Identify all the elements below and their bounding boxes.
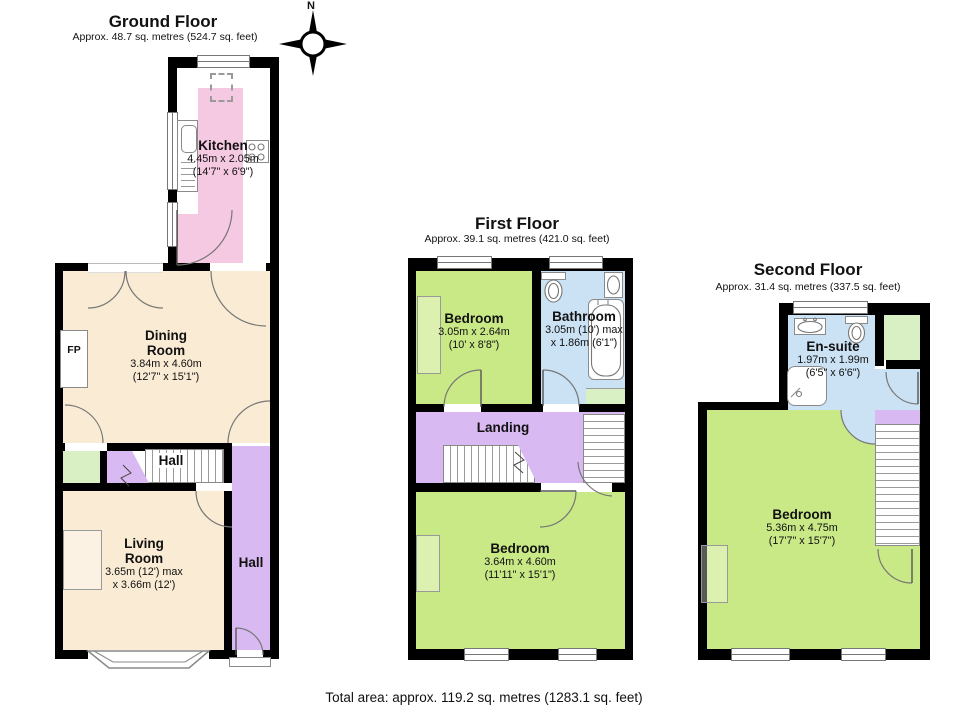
room-label: Bathroom 3.05m (10') max x 1.86m (6'1")	[545, 309, 623, 350]
floor-subtitle: Approx. 31.4 sq. metres (337.5 sq. feet)	[715, 281, 900, 293]
front-door-step	[229, 657, 271, 667]
appliance-outline	[210, 73, 233, 102]
room-name: Dining	[130, 328, 201, 343]
room-dims: 3.05m (10') max	[545, 324, 623, 337]
room-dims: x 3.66m (12')	[105, 579, 183, 592]
fireplace-label: FP	[67, 344, 80, 356]
room-dims: 3.65m (12') max	[105, 566, 183, 579]
floor-title: First Floor	[475, 214, 559, 234]
hall-label: Hall	[239, 555, 264, 570]
stair-winder	[107, 451, 149, 483]
room-dims: 3.64m x 4.60m	[484, 556, 555, 569]
door-opening	[65, 443, 107, 451]
room-dims: (17'7" x 15'7")	[766, 535, 837, 548]
wall	[875, 313, 884, 366]
window	[841, 648, 886, 661]
room-label: En-suite 1.97m x 1.99m (6'5" x 6'6")	[797, 339, 868, 380]
wall	[920, 303, 930, 660]
floor-subtitle: Approx. 39.1 sq. metres (421.0 sq. feet)	[424, 233, 609, 245]
window	[793, 301, 868, 314]
wall	[270, 57, 279, 263]
window	[549, 256, 603, 269]
room-name: En-suite	[797, 339, 868, 354]
door-opening	[541, 483, 578, 492]
room-label: Living Room 3.65m (12') max x 3.66m (12'…	[105, 536, 183, 592]
window	[731, 648, 790, 661]
french-door-opening	[88, 263, 163, 273]
cupboard-floor	[586, 388, 625, 404]
room-name: Room	[130, 343, 201, 358]
door-opening	[578, 483, 612, 492]
window	[558, 648, 597, 661]
wall	[886, 360, 925, 369]
kitchen-galley	[177, 214, 243, 263]
landing-label: Landing	[477, 420, 530, 435]
door-opening	[196, 483, 232, 491]
window	[464, 648, 509, 661]
room-dims: 1.97m x 1.99m	[797, 354, 868, 367]
compass-circle	[301, 32, 325, 56]
alcove-outline	[63, 530, 102, 590]
staircase	[443, 445, 535, 483]
wall	[408, 649, 633, 660]
floor-title: Second Floor	[754, 260, 863, 280]
room-dims: (11'11" x 15'1")	[484, 569, 555, 582]
alcove-outline	[416, 535, 440, 592]
floor-subtitle: Approx. 48.7 sq. metres (524.7 sq. feet)	[72, 31, 257, 43]
wall	[100, 451, 107, 483]
room-name: Bathroom	[545, 309, 623, 324]
door-opening	[210, 263, 266, 271]
room-dims: 4.45m x 2.05m	[187, 153, 258, 166]
compass-north-label: N	[307, 0, 315, 12]
room-dims: (14'7" x 6'9")	[187, 166, 258, 179]
room-name: Bedroom	[484, 541, 555, 556]
wall	[698, 402, 707, 660]
wall	[625, 258, 633, 660]
floor-title: Ground Floor	[109, 12, 218, 32]
wall	[698, 402, 788, 410]
basin-icon	[604, 272, 623, 298]
hall-label: Hall	[156, 453, 187, 468]
room-label: Bedroom 5.36m x 4.75m (17'7" x 15'7")	[766, 507, 837, 548]
wall	[408, 258, 416, 660]
window	[197, 55, 250, 68]
hall-corridor-floor	[232, 446, 270, 650]
room-label: Dining Room 3.84m x 4.60m (12'7" x 15'1"…	[130, 328, 201, 384]
toilet-cistern-icon	[541, 272, 566, 280]
ensuite-entry-floor	[875, 369, 920, 410]
toilet-cistern-icon	[845, 316, 868, 324]
basin-icon	[794, 318, 826, 335]
room-label: Bedroom 3.05m x 2.64m (10' x 8'8")	[438, 311, 509, 352]
room-name: Room	[105, 551, 183, 566]
room-dims: (12'7" x 15'1")	[130, 371, 201, 384]
door-opening	[543, 404, 579, 412]
room-name: Living	[105, 536, 183, 551]
room-dims: 3.05m x 2.64m	[438, 326, 509, 339]
room-dims: (6'5" x 6'6")	[797, 367, 868, 380]
staircase	[583, 414, 625, 483]
door-opening	[444, 404, 481, 412]
wall	[224, 443, 232, 659]
room-dims: 3.84m x 4.60m	[130, 358, 201, 371]
fireplace	[60, 330, 88, 388]
window	[437, 256, 492, 269]
room-label: Bedroom 3.64m x 4.60m (11'11" x 15'1")	[484, 541, 555, 582]
staircase	[875, 424, 920, 546]
wall	[270, 263, 279, 659]
floorplan-canvas: N Ground Floor Approx. 48.7 sq. metres (…	[0, 0, 980, 712]
cupboard-floor	[63, 451, 100, 483]
total-area-text: Total area: approx. 119.2 sq. metres (12…	[325, 690, 642, 705]
stair-landing-floor	[875, 410, 920, 424]
room-label: Kitchen 4.45m x 2.05m (14'7" x 6'9")	[187, 138, 258, 179]
bay-opening	[88, 650, 209, 659]
room-name: Bedroom	[438, 311, 509, 326]
room-dims: x 1.86m (6'1")	[545, 337, 623, 350]
cupboard-floor	[884, 315, 920, 360]
compass-icon	[279, 10, 347, 76]
window	[167, 202, 178, 247]
alcove-outline	[701, 545, 728, 603]
room-dims: 5.36m x 4.75m	[766, 522, 837, 535]
room-name: Kitchen	[187, 138, 258, 153]
wall	[532, 271, 541, 404]
wall	[55, 263, 63, 659]
room-name: Bedroom	[766, 507, 837, 522]
room-dims: (10' x 8'8")	[438, 339, 509, 352]
